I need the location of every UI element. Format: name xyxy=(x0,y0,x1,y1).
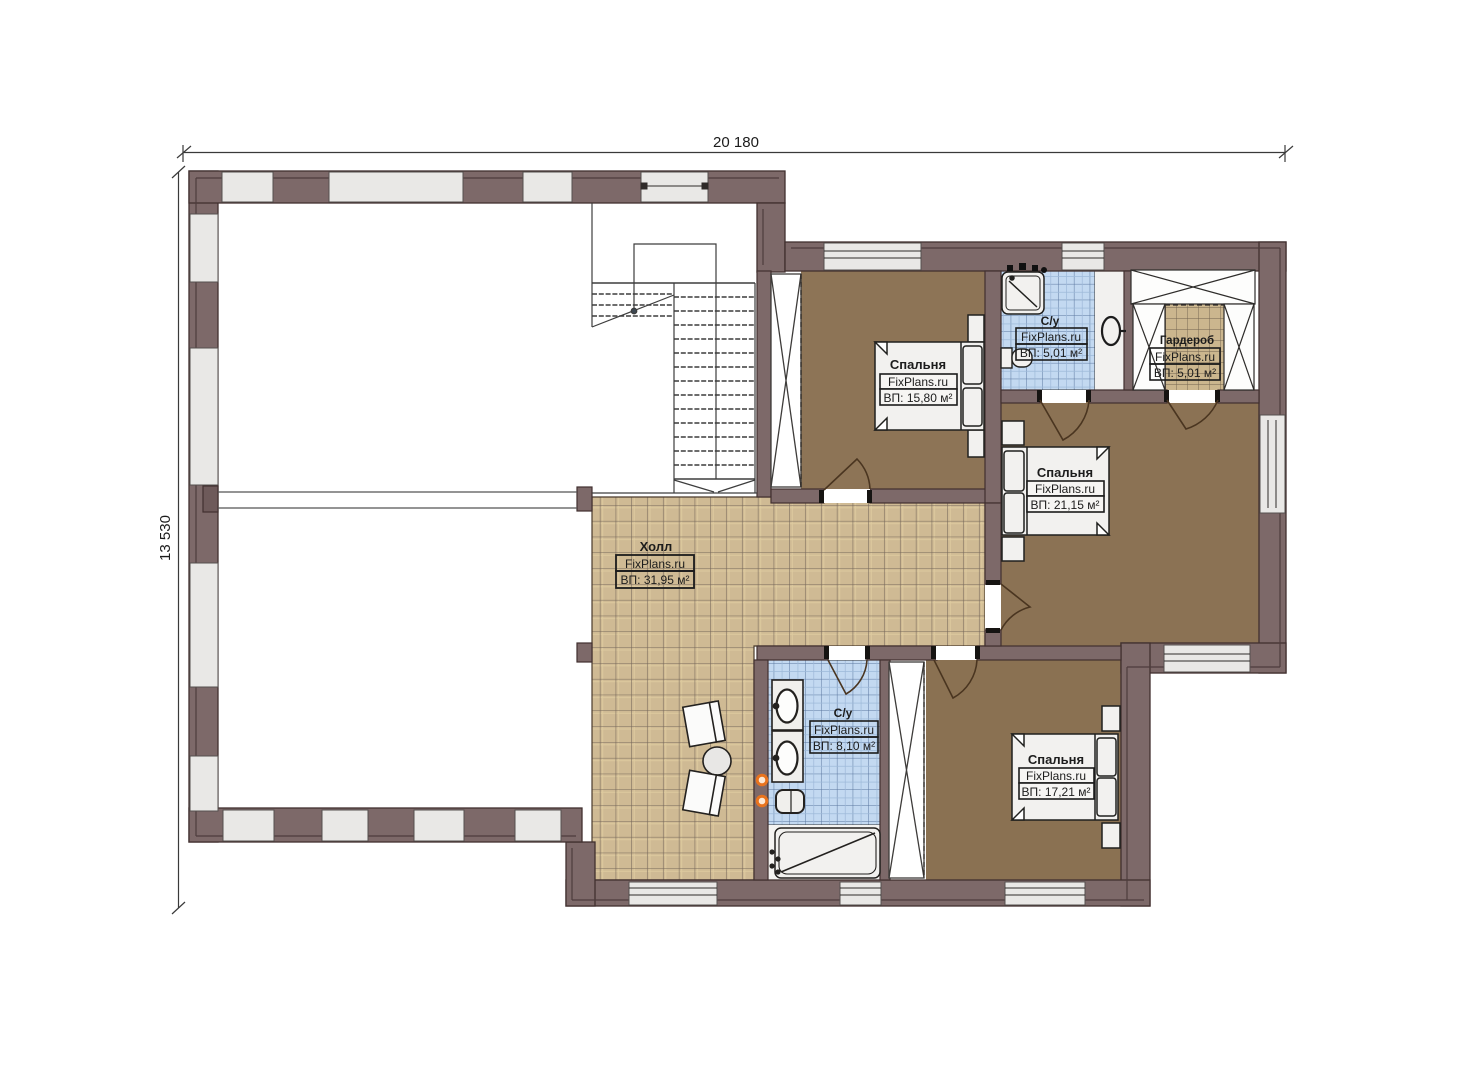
svg-text:ВП: 21,15 м²: ВП: 21,15 м² xyxy=(1031,498,1100,512)
svg-text:FixPlans.ru: FixPlans.ru xyxy=(814,723,874,737)
svg-text:Гардероб: Гардероб xyxy=(1160,335,1214,347)
svg-text:Холл: Холл xyxy=(640,539,673,554)
svg-text:13 530: 13 530 xyxy=(157,515,174,561)
svg-text:FixPlans.ru: FixPlans.ru xyxy=(1021,330,1081,344)
svg-text:ВП: 17,21 м²: ВП: 17,21 м² xyxy=(1022,785,1091,799)
svg-text:С/у: С/у xyxy=(834,706,853,720)
svg-text:ВП: 5,01 м²: ВП: 5,01 м² xyxy=(1020,346,1082,360)
svg-text:ВП: 8,10 м²: ВП: 8,10 м² xyxy=(813,739,875,753)
svg-text:FixPlans.ru: FixPlans.ru xyxy=(888,375,948,389)
svg-text:FixPlans.ru: FixPlans.ru xyxy=(1035,482,1095,496)
svg-text:ВП: 5,01 м²: ВП: 5,01 м² xyxy=(1154,366,1216,380)
svg-text:Спальня: Спальня xyxy=(890,357,946,372)
svg-text:ВП: 15,80 м²: ВП: 15,80 м² xyxy=(884,391,953,405)
svg-text:Спальня: Спальня xyxy=(1037,465,1093,480)
svg-text:FixPlans.ru: FixPlans.ru xyxy=(625,557,685,571)
svg-text:FixPlans.ru: FixPlans.ru xyxy=(1155,350,1215,364)
svg-text:Спальня: Спальня xyxy=(1028,752,1084,767)
svg-text:С/у: С/у xyxy=(1041,314,1060,328)
svg-text:20 180: 20 180 xyxy=(713,134,759,151)
svg-text:ВП: 31,95 м²: ВП: 31,95 м² xyxy=(621,573,690,587)
svg-text:FixPlans.ru: FixPlans.ru xyxy=(1026,769,1086,783)
